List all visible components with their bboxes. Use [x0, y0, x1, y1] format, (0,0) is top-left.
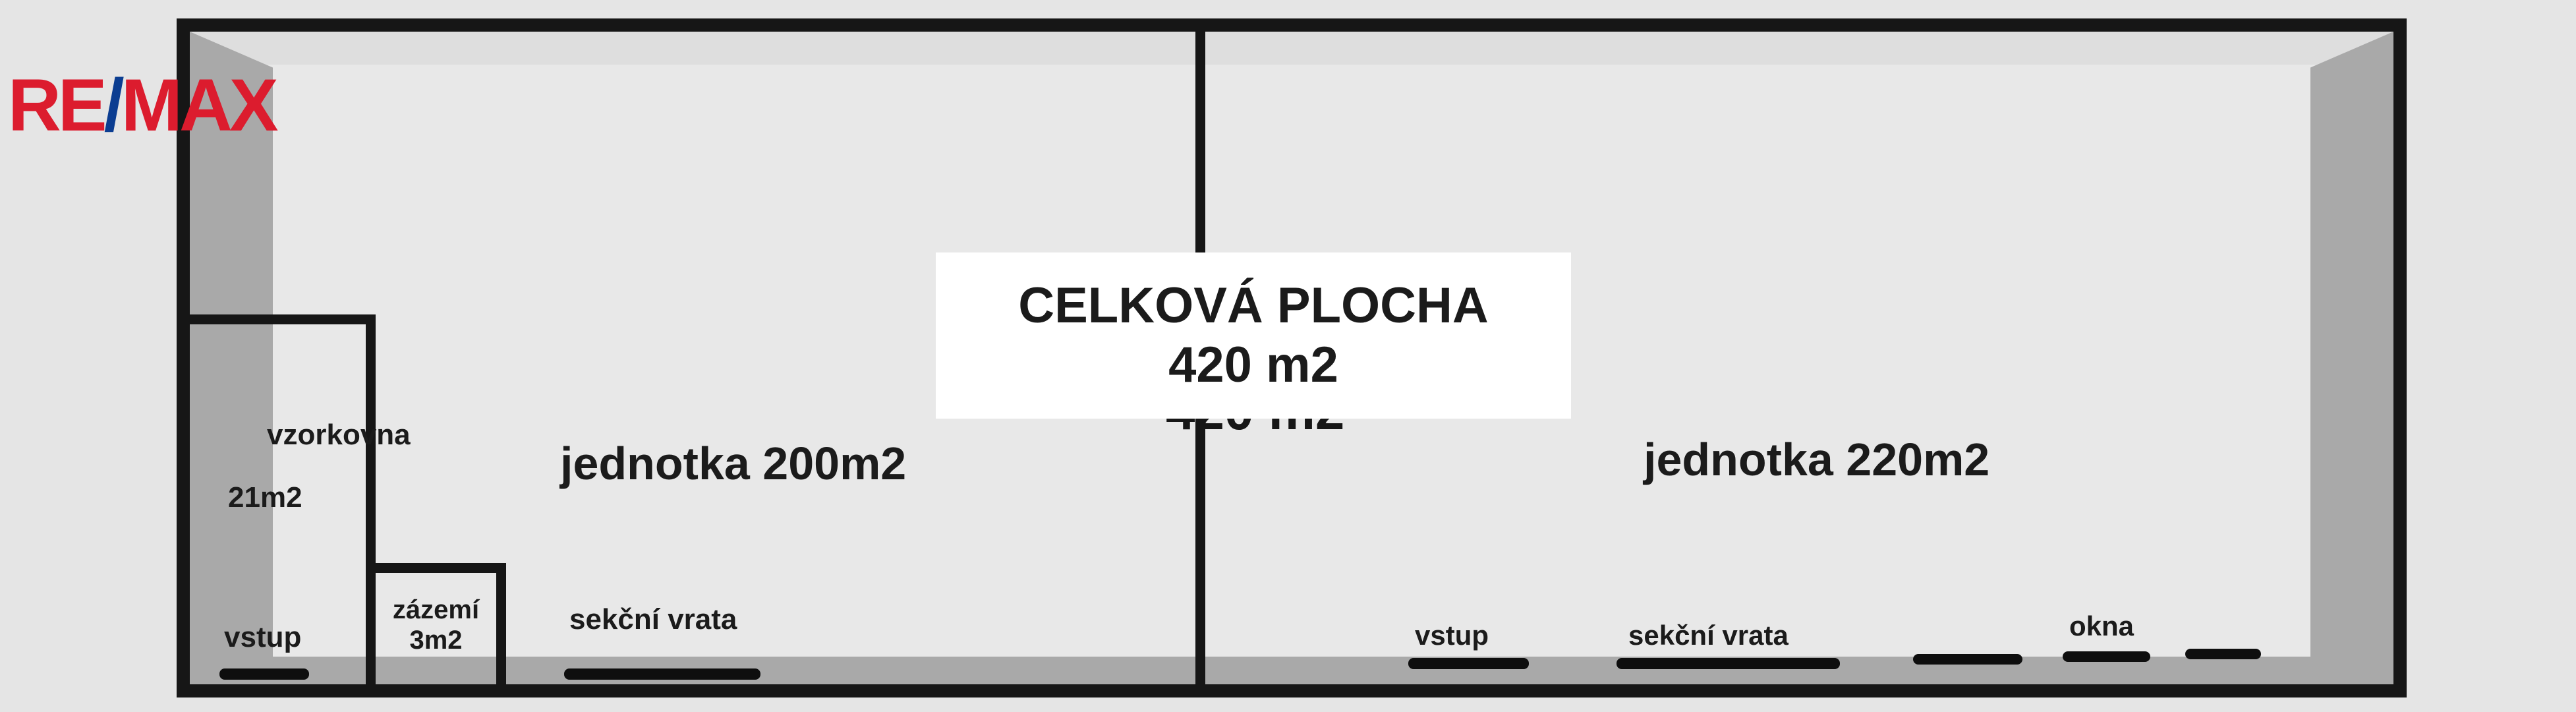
sectional-door-marker-right	[1617, 658, 1840, 669]
room-vzorkovna-label: vzorkovna	[267, 419, 411, 451]
top-wall-inner-shade	[190, 32, 2393, 65]
entrance-label-right: vstup	[1415, 620, 1489, 651]
logo-re: RE	[8, 64, 104, 146]
total-area-title: CELKOVÁ PLOCHA	[1018, 281, 1489, 331]
sectional-door-marker-left	[564, 668, 760, 680]
total-area-value: 420 m2	[1168, 340, 1338, 390]
unit-label-200: jednotka 200m2	[560, 439, 906, 488]
logo-slash: /	[104, 64, 121, 146]
remax-logo: RE/MAX	[8, 69, 275, 142]
windows-label-right: okna	[2069, 610, 2134, 642]
room-vzorkovna-area: 21m2	[228, 482, 302, 514]
total-area-label: CELKOVÁ PLOCHA 420 m2	[936, 252, 1571, 419]
floor-shade-band	[190, 657, 2393, 684]
sectional-door-label-right: sekční vrata	[1628, 620, 1789, 651]
entrance-door-marker-right	[1408, 658, 1529, 669]
right-wall-shade	[2310, 32, 2393, 684]
floor-plan: 420 m2 CELKOVÁ PLOCHA 420 m2 jednotka 20…	[0, 0, 2576, 712]
window-marker-2	[2063, 651, 2150, 662]
entrance-label-left: vstup	[224, 622, 301, 653]
window-marker-3	[2185, 649, 2261, 659]
unit-label-220: jednotka 220m2	[1644, 435, 1989, 484]
window-marker-1	[1913, 654, 2022, 665]
room-zazemi-label: zázemí 3m2	[376, 595, 496, 655]
room-zazemi-area: 3m2	[376, 625, 496, 655]
sectional-door-label-left: sekční vrata	[569, 604, 737, 636]
entrance-door-marker-left	[219, 668, 309, 680]
logo-max: MAX	[121, 64, 275, 146]
room-zazemi-name: zázemí	[376, 595, 496, 625]
